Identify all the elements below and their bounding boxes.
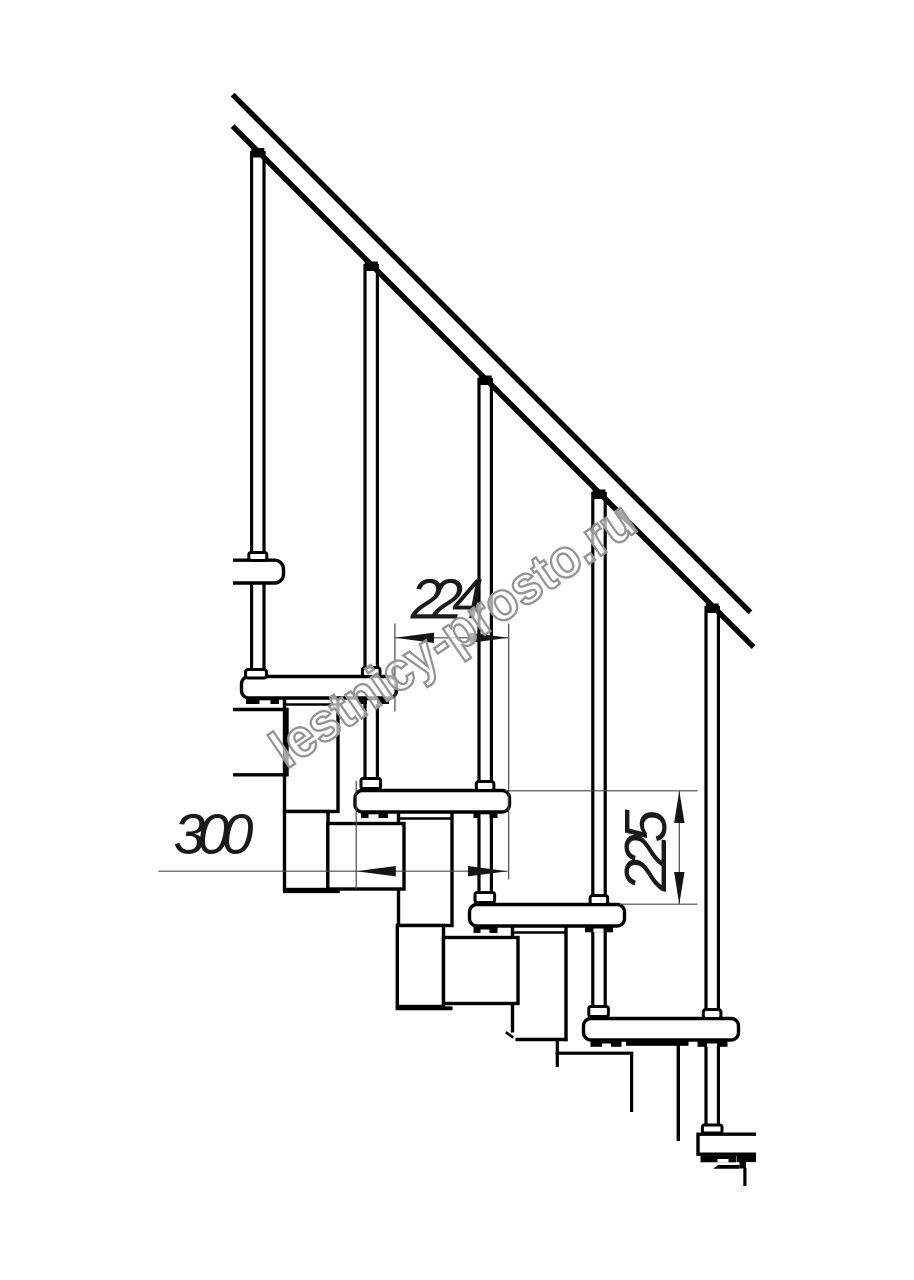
- svg-text:225: 225: [613, 809, 679, 892]
- svg-text:300: 300: [174, 803, 254, 867]
